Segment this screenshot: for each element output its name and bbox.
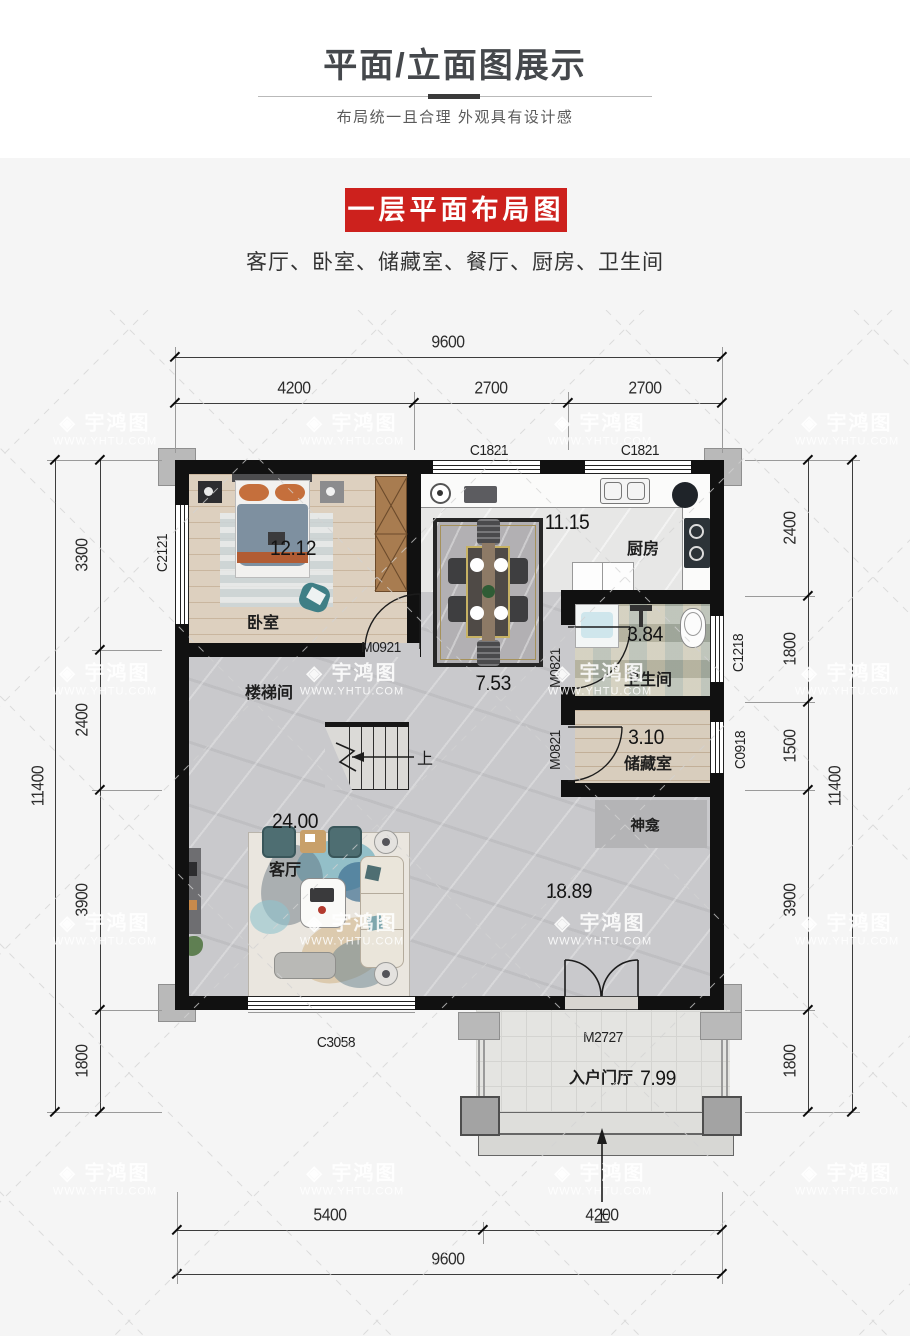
living-bench <box>274 952 336 979</box>
window-code-living: C3058 <box>317 1035 355 1051</box>
stair-landing-edge <box>325 722 409 727</box>
floor-banner: 一层平面布局图 <box>345 188 567 232</box>
stair-up-label: 上 <box>417 745 433 769</box>
entry-step-2 <box>478 1134 734 1156</box>
dim-line-left-total <box>55 460 56 1112</box>
porch-rail-left2 <box>483 1040 485 1098</box>
window-code-storage: C0918 <box>733 731 749 769</box>
window-living-sill <box>248 1012 415 1013</box>
dining-plate-4 <box>494 606 508 620</box>
door-code-entry: M2727 <box>583 1030 623 1046</box>
page-subtitle: 布局统一且合理 外观具有设计感 <box>0 106 910 127</box>
bedroom-area: 12.12 <box>270 537 316 561</box>
porch-rail-right2 <box>726 1040 728 1098</box>
kitchen-sink-basin-right <box>627 482 645 500</box>
watermark: ◈ 宇鸿图WWW.YHTU.COM <box>525 1161 675 1198</box>
window-code-bathroom: C1218 <box>731 634 747 672</box>
foyer-area: 7.99 <box>640 1067 676 1091</box>
wall-bathroom-top <box>561 590 724 604</box>
room-list: 客厅、卧室、储藏室、餐厅、厨房、卫生间 <box>0 246 910 276</box>
toilet-bowl <box>684 612 702 636</box>
kitchen-sink-basin-left <box>604 482 622 500</box>
shrine-label: 神龛 <box>631 815 660 836</box>
watermark: ◈ 宇鸿图WWW.YHTU.COM <box>772 911 910 948</box>
bedroom-label: 卧室 <box>247 609 279 633</box>
dim-top-seg-2: 2700 <box>628 378 661 399</box>
dim-line-right-total <box>852 460 853 1112</box>
sofa-pillow-1 <box>365 865 382 882</box>
porch-rail-left <box>478 1040 480 1098</box>
dim-top-total: 9600 <box>431 332 464 353</box>
dim-right-seg-0: 2400 <box>780 511 801 544</box>
dim-left-seg-1: 2400 <box>72 703 93 736</box>
wall-storage-bottom <box>561 783 724 797</box>
dim-line-top-total <box>175 357 722 358</box>
ext-line <box>92 1010 162 1011</box>
ext-line <box>47 460 162 461</box>
page-title: 平面/立面图展示 <box>0 38 910 87</box>
watermark: ◈ 宇鸿图WWW.YHTU.COM <box>277 911 427 948</box>
hall-area: 18.89 <box>546 880 592 904</box>
watermark: ◈ 宇鸿图WWW.YHTU.COM <box>30 661 180 698</box>
watermark: ◈ 宇鸿图WWW.YHTU.COM <box>772 1161 910 1198</box>
watermark: ◈ 宇鸿图WWW.YHTU.COM <box>772 411 910 448</box>
kitchen-pot-knob <box>437 490 443 496</box>
window-storage <box>710 722 724 773</box>
watermark: ◈ 宇鸿图WWW.YHTU.COM <box>525 661 675 698</box>
side-table-bottom-decor <box>382 970 390 978</box>
dining-plate-1 <box>470 558 484 572</box>
bed-pillow-right <box>275 484 305 501</box>
bathroom-area: 3.84 <box>627 623 663 647</box>
dim-top-seg-0: 4200 <box>277 378 310 399</box>
porch-rail-right <box>721 1040 723 1098</box>
cooktop-burner-1 <box>689 524 704 539</box>
kitchen-island-divider <box>602 562 603 592</box>
watermark: ◈ 宇鸿图WWW.YHTU.COM <box>525 411 675 448</box>
dim-line-bottom-total <box>177 1274 722 1275</box>
watermark: ◈ 宇鸿图WWW.YHTU.COM <box>30 1161 180 1198</box>
kitchen-wok <box>672 482 698 508</box>
ext-line <box>745 460 860 461</box>
door-code-bedroom: M0921 <box>361 640 401 656</box>
window-bedroom <box>175 505 189 624</box>
dining-plate-2 <box>494 558 508 572</box>
coffee-table-tray <box>310 888 334 902</box>
side-table-top-decor <box>382 838 390 846</box>
watermark: ◈ 宇鸿图WWW.YHTU.COM <box>525 911 675 948</box>
nightstand-right-lamp <box>326 487 335 496</box>
entry-step-1 <box>490 1112 722 1134</box>
dim-bottom-total: 9600 <box>431 1249 464 1270</box>
ext-line <box>47 1112 162 1113</box>
living-label: 客厅 <box>269 856 301 880</box>
dining-chair-bottom <box>477 640 500 666</box>
kitchen-appliance <box>464 486 497 503</box>
tray-item <box>305 834 315 842</box>
dining-plate-3 <box>470 606 484 620</box>
watermark: ◈ 宇鸿图WWW.YHTU.COM <box>30 411 180 448</box>
dining-chair-top <box>477 519 500 545</box>
dim-left-seg-0: 3300 <box>72 538 93 571</box>
title-divider-accent <box>428 94 480 99</box>
door-opening-entry <box>565 996 638 1010</box>
dim-line-top-segments <box>175 403 722 404</box>
ext-line <box>92 650 162 651</box>
dim-bottom-seg-1: 4200 <box>585 1205 618 1226</box>
porch-column-left <box>460 1096 500 1136</box>
dining-centerpiece <box>482 585 495 598</box>
porch-pilaster-left <box>458 1012 500 1040</box>
foyer-floor <box>476 1010 730 1112</box>
kitchen-area: 11.15 <box>545 511 590 535</box>
watermark: ◈ 宇鸿图WWW.YHTU.COM <box>277 1161 427 1198</box>
ext-line <box>745 1112 860 1113</box>
watermark: ◈ 宇鸿图WWW.YHTU.COM <box>30 911 180 948</box>
watermark: ◈ 宇鸿图WWW.YHTU.COM <box>277 411 427 448</box>
dim-line-bottom-segments <box>177 1230 722 1231</box>
porch-column-right <box>702 1096 742 1136</box>
watermark: ◈ 宇鸿图WWW.YHTU.COM <box>772 661 910 698</box>
bed-pillow-left <box>239 484 269 501</box>
foyer-label: 入户门厅 <box>569 1064 633 1088</box>
kitchen-island <box>572 562 634 592</box>
dim-right-total: 11400 <box>825 766 846 806</box>
window-living <box>248 996 415 1010</box>
window-bathroom <box>710 616 724 682</box>
armchair-right <box>328 826 362 858</box>
window-code-bedroom: C2121 <box>155 534 171 572</box>
storage-area: 3.10 <box>628 726 664 750</box>
door-code-storage: M0821 <box>548 730 564 770</box>
dining-area: 7.53 <box>475 672 511 696</box>
living-area: 24.00 <box>272 810 318 834</box>
wardrobe <box>375 476 407 592</box>
nightstand-left-lamp <box>204 487 213 496</box>
ext-line <box>92 790 162 791</box>
ext-line <box>483 1222 484 1244</box>
dim-bottom-seg-0: 5400 <box>313 1205 346 1226</box>
porch-pilaster-right <box>700 1012 742 1040</box>
cooktop-burner-2 <box>689 546 704 561</box>
watermark: ◈ 宇鸿图WWW.YHTU.COM <box>277 661 427 698</box>
window-code-kitchen-left: C1821 <box>470 443 508 459</box>
storage-label: 储藏室 <box>624 750 672 774</box>
bath-sink <box>581 612 613 638</box>
wall-bedroom-right <box>407 460 421 657</box>
page: { "header": { "title": "平面/立面图展示", "subt… <box>0 0 910 1336</box>
kitchen-label: 厨房 <box>627 535 659 559</box>
dim-left-total: 11400 <box>28 766 49 806</box>
dim-right-seg-4: 1800 <box>780 1044 801 1077</box>
dim-right-seg-2: 1500 <box>780 729 801 762</box>
stair-treads <box>349 722 409 790</box>
dim-left-seg-3: 1800 <box>72 1044 93 1077</box>
window-kitchen-left <box>433 460 540 474</box>
dim-top-seg-1: 2700 <box>474 378 507 399</box>
window-kitchen-right <box>585 460 691 474</box>
